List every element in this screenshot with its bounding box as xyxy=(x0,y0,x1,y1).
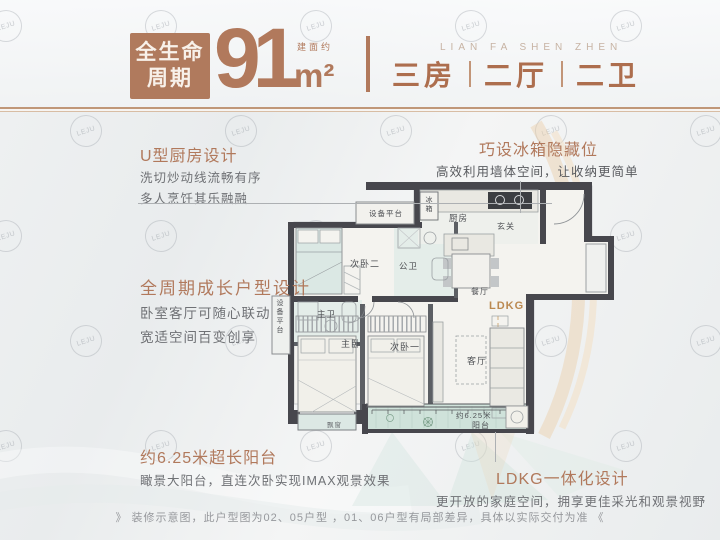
label-public-bath: 公卫 xyxy=(399,260,418,272)
fridge-note-leader-line xyxy=(520,181,521,213)
kitchen-note-line1: 洗切炒动线流畅有序 xyxy=(140,167,262,186)
ldkg-note-leader-line xyxy=(495,432,496,462)
label-fridge: 冰箱 xyxy=(423,196,433,214)
label-bay-window: 飘窗 xyxy=(327,419,342,429)
growth-note-line2: 宽适空间百变创享 xyxy=(140,326,256,346)
label-entry: 玄关 xyxy=(497,221,515,232)
label-equipment-platform-left: 设备平台 xyxy=(274,299,284,335)
label-balcony: 阳台 xyxy=(472,420,490,431)
label-dining: 餐厅 xyxy=(471,286,489,297)
kitchen-note-leader-line xyxy=(138,203,552,204)
growth-note-line1: 卧室客厅可随心联动 xyxy=(140,302,271,322)
balcony-note-title: 约6.25米超长阳台 xyxy=(140,444,277,468)
fridge-note-line: 高效利用墙体空间，让收纳更简单 xyxy=(436,161,639,180)
disclaimer-text: 》 装修示意图，此户型图为02、05户型 ，01、06户型有局部差异，具体以实际… xyxy=(0,509,720,525)
fridge-note-title: 巧设冰箱隐藏位 xyxy=(479,136,598,160)
label-equipment-platform-top: 设备平台 xyxy=(360,208,412,219)
ldkg-note-title: LDKG一体化设计 xyxy=(496,465,629,489)
poster: LEJULEJULEJULEJULEJULEJULEJULEJULEJULEJU… xyxy=(0,0,720,540)
label-master-bedroom: 主卧 xyxy=(341,337,361,350)
balcony-note-line: 瞰景大阳台，直连次卧实现IMAX观景效果 xyxy=(140,470,391,489)
growth-note-title: 全周期成长户型设计 xyxy=(140,274,311,299)
floor-plan-drawing xyxy=(0,0,720,540)
label-living-room: 客厅 xyxy=(467,354,487,367)
label-kitchen: 厨房 xyxy=(449,212,468,224)
label-ldkg: LDKG xyxy=(489,300,524,312)
kitchen-note-line2: 多人烹饪其乐融融 xyxy=(140,188,248,207)
label-master-bath: 主卫 xyxy=(317,308,336,320)
label-bedroom2: 次卧二 xyxy=(350,257,380,270)
label-bedroom1: 次卧一 xyxy=(390,340,420,353)
kitchen-note-title: U型厨房设计 xyxy=(140,142,238,166)
ldkg-note-line: 更开放的家庭空间，拥享更佳采光和观景视野 xyxy=(436,491,706,510)
